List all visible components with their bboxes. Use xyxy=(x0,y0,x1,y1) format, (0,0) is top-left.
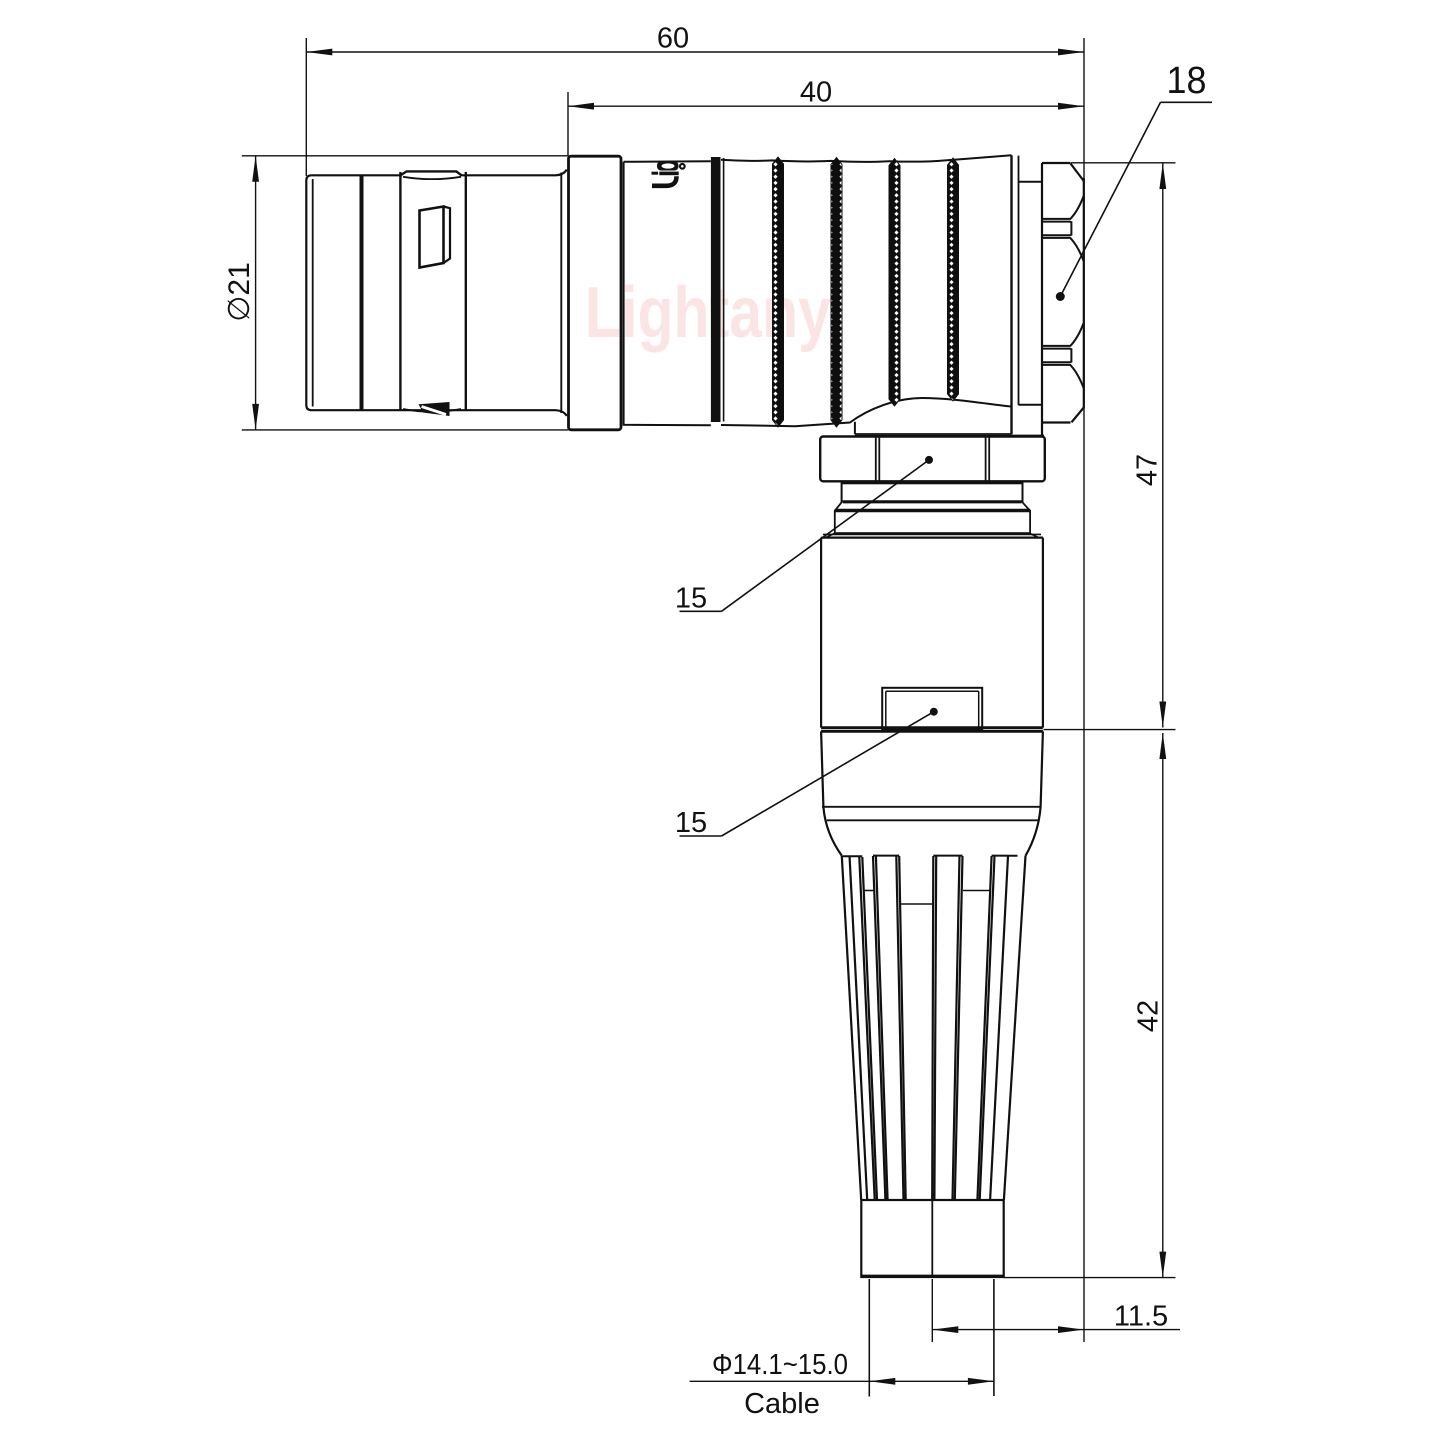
svg-text:60: 60 xyxy=(657,23,689,55)
svg-text:15: 15 xyxy=(675,583,707,615)
svg-text:40: 40 xyxy=(800,77,832,109)
svg-text:Cable: Cable xyxy=(744,1388,820,1420)
svg-text:∅21: ∅21 xyxy=(223,262,256,322)
svg-text:47: 47 xyxy=(1132,454,1164,486)
svg-text:42: 42 xyxy=(1133,1000,1165,1032)
svg-text:15: 15 xyxy=(675,807,707,839)
svg-text:18: 18 xyxy=(1167,60,1207,102)
svg-text:11.5: 11.5 xyxy=(1114,1301,1168,1333)
svg-text:Φ14.1~15.0: Φ14.1~15.0 xyxy=(712,1349,848,1381)
